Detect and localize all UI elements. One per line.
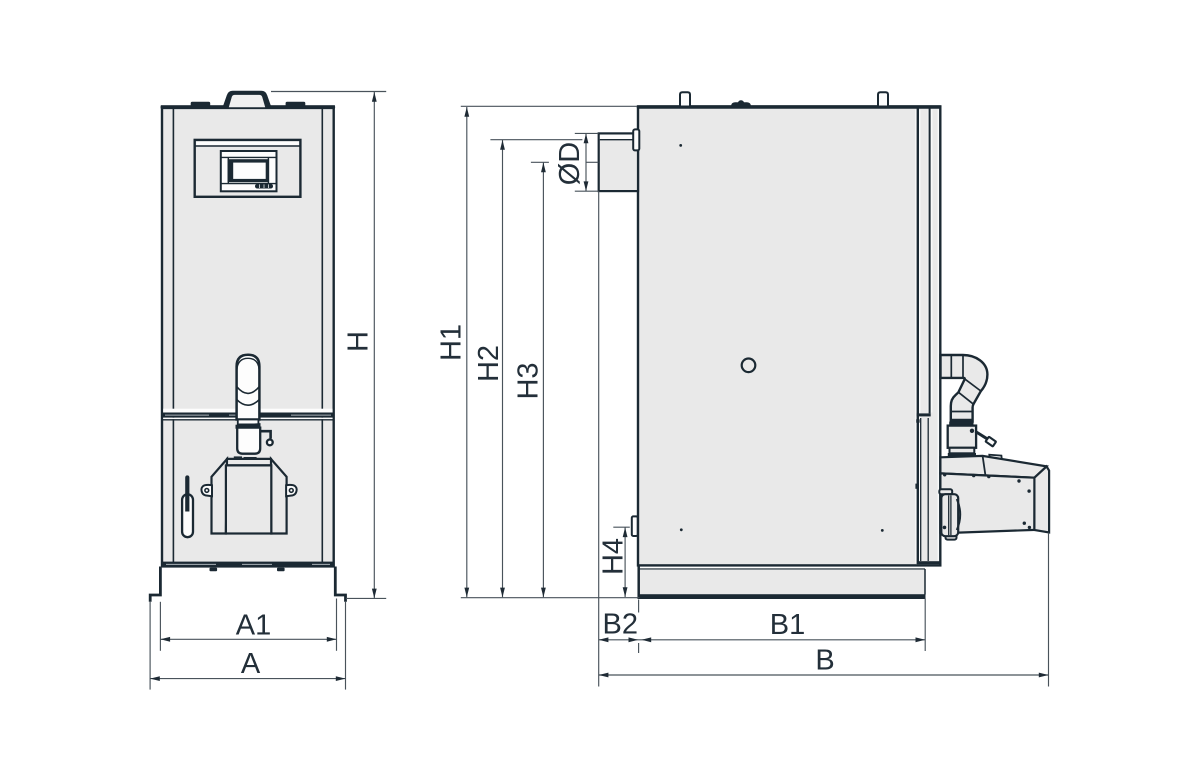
svg-text:H: H [343,331,375,352]
svg-text:H3: H3 [512,362,544,399]
svg-text:A: A [241,648,261,680]
svg-text:ØD: ØD [554,142,586,186]
svg-text:H4: H4 [598,538,630,575]
svg-text:A1: A1 [236,609,271,641]
svg-text:H2: H2 [473,345,505,382]
svg-text:B2: B2 [603,609,638,641]
svg-text:B1: B1 [770,609,805,641]
svg-text:H1: H1 [435,324,467,361]
svg-text:B: B [815,644,834,676]
